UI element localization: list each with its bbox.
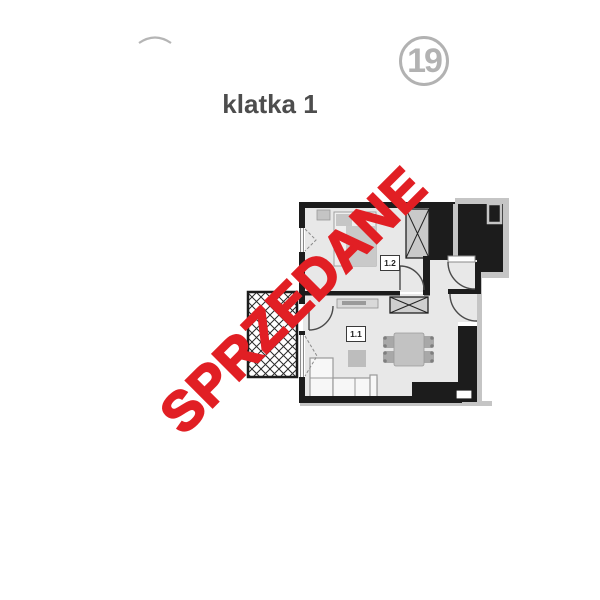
unit-number-badge: 19 (399, 36, 449, 86)
logo-arc (139, 38, 171, 44)
hall-cabinet-symbol (390, 297, 428, 313)
floorplan-page: klatka 1 19 1.1 1.2 SPRZEDANE (0, 0, 600, 600)
dining-table (394, 333, 424, 366)
entrance-door-panel (448, 256, 475, 262)
unit-number: 19 (407, 42, 441, 81)
staircase-label: klatka 1 (190, 89, 350, 120)
stair-door-notch (456, 390, 472, 399)
room-label-1-1: 1.1 (346, 326, 366, 342)
coffee-table (348, 350, 366, 367)
